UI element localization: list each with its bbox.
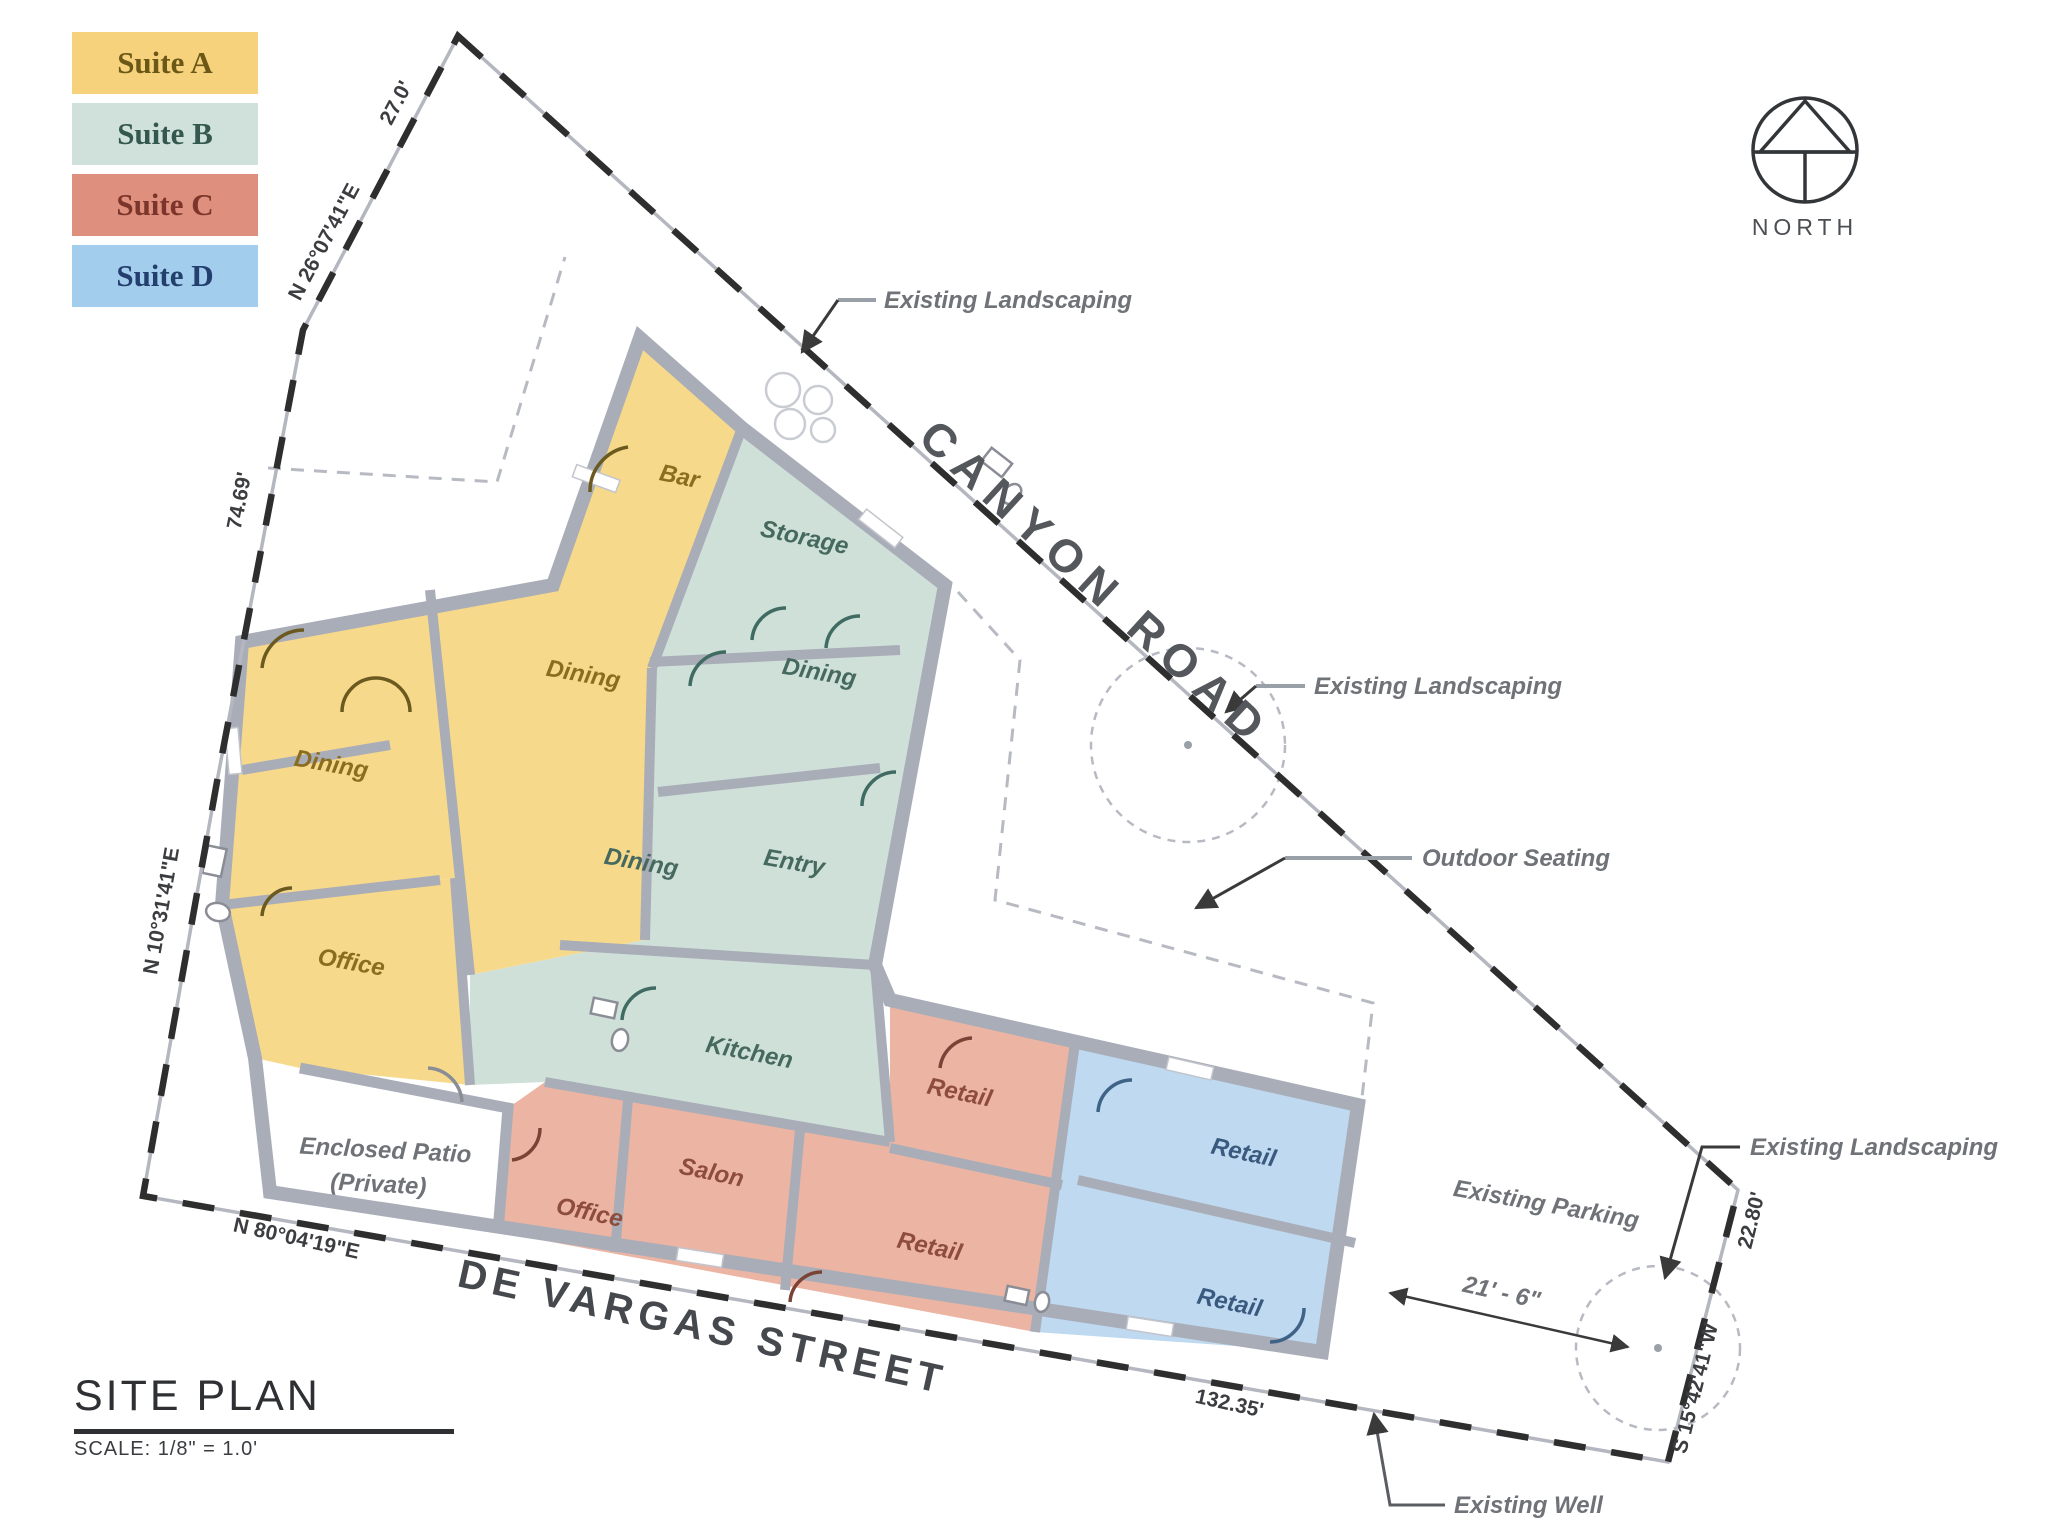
annotation-landscaping-mid: Existing Landscaping: [1314, 673, 1562, 700]
north-label: NORTH: [1752, 214, 1858, 240]
leader-outdoor-seating-arrow: [1196, 858, 1285, 908]
tree-large-middle-trunk: [1184, 741, 1192, 749]
annotation-landscaping-right: Existing Landscaping: [1750, 1134, 1998, 1161]
legend-suite-a: Suite A: [72, 32, 258, 94]
site-plan-drawing: NORTH CANYON ROAD DE VARGAS STREET N 26°…: [0, 0, 2060, 1527]
legend-suite-a-label: Suite A: [117, 45, 213, 81]
setback-line-upper-left: [268, 257, 565, 482]
scale-note: SCALE: 1/8" = 1.0': [74, 1438, 454, 1461]
title-block: SITE PLAN SCALE: 1/8" = 1.0': [74, 1372, 454, 1461]
title-underline: [74, 1429, 454, 1434]
page-title: SITE PLAN: [74, 1372, 454, 1421]
leader-landscaping-top-arrow: [802, 300, 838, 352]
annotation-labels: Existing Landscaping Existing Landscapin…: [884, 287, 1998, 1519]
legend-suite-b: Suite B: [72, 103, 258, 165]
annotation-dim-21-6: 21' - 6": [1459, 1271, 1543, 1315]
fixture-sink-retailD: [1005, 1286, 1030, 1305]
legend-suite-c: Suite C: [72, 174, 258, 236]
legend-suite-d-label: Suite D: [116, 258, 213, 294]
legend: Suite A Suite B Suite C Suite D: [72, 32, 258, 316]
north-arrow: [1753, 98, 1857, 202]
length-w-upper: 74.69': [223, 470, 257, 531]
tree-cluster-top: [766, 373, 835, 442]
leader-existing-well: [1374, 1414, 1445, 1505]
bearing-w-lower: N 10°31'41"E: [139, 846, 184, 976]
wall-suiteAB-divider: [645, 668, 652, 940]
annotation-landscaping-top: Existing Landscaping: [884, 287, 1132, 314]
label-patio-line2: (Private): [330, 1169, 427, 1201]
annotation-existing-well: Existing Well: [1454, 1492, 1604, 1519]
label-existing-parking: Existing Parking: [1451, 1175, 1641, 1234]
fixture-sink-kitchen: [591, 998, 618, 1019]
legend-suite-c-label: Suite C: [116, 187, 213, 223]
leader-landscaping-right: [1665, 1147, 1740, 1278]
legend-suite-d: Suite D: [72, 245, 258, 307]
legend-suite-b-label: Suite B: [117, 116, 213, 152]
annotation-outdoor-seating: Outdoor Seating: [1422, 845, 1610, 872]
bearing-e: S 15°42'41"W: [1668, 1321, 1723, 1456]
street-canyon-road: CANYON ROAD: [910, 409, 1282, 756]
tree-bottom-right-trunk: [1654, 1344, 1662, 1352]
length-e: 22.80': [1734, 1190, 1770, 1251]
